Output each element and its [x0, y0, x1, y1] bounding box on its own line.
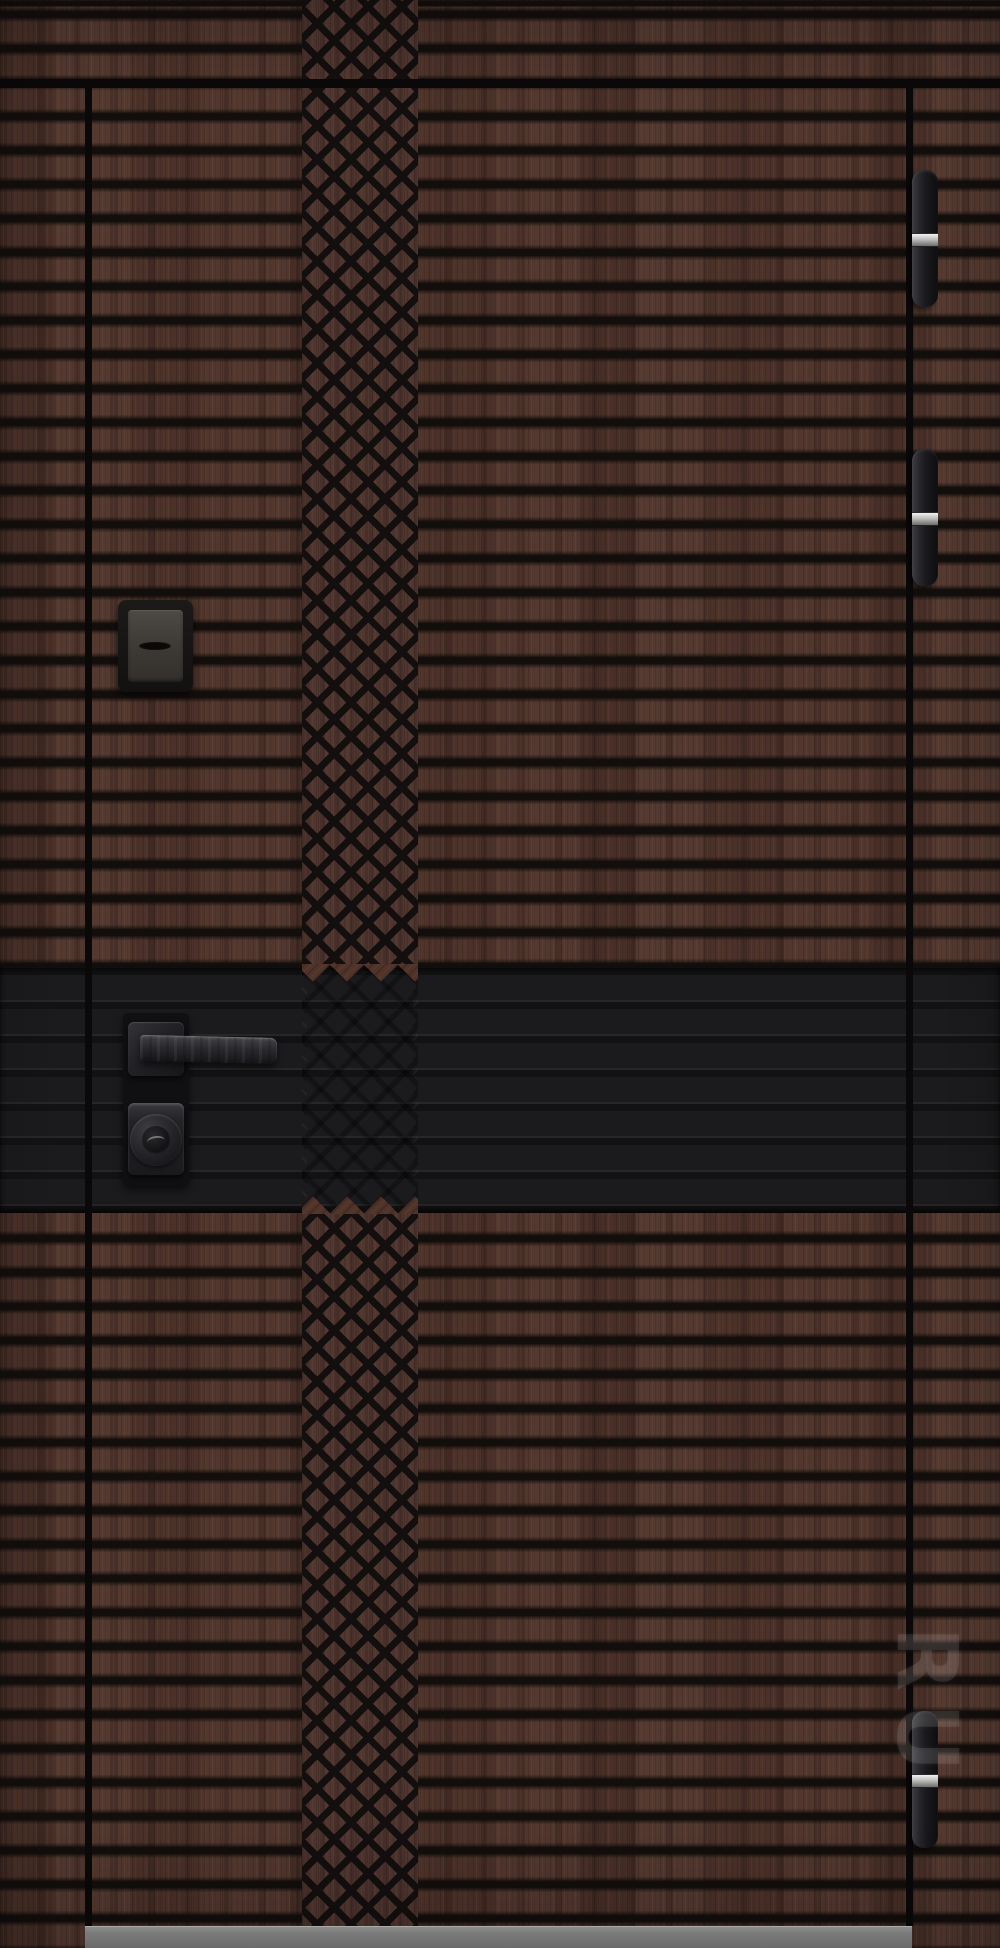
hinge-bottom [912, 1711, 938, 1848]
upper-lock-cover-face [128, 610, 183, 682]
keyhole-slot [139, 642, 171, 650]
hinge-middle [912, 449, 938, 586]
wood-diamond [361, 1196, 401, 1214]
wood-diamond [395, 1196, 418, 1214]
door-product-photo: RU [0, 0, 1000, 1948]
lattice-band-bottom-diamonds [302, 1188, 418, 1214]
lever-handle [140, 1035, 278, 1064]
wood-diamond [302, 964, 333, 982]
lattice-band-top-diamonds [302, 964, 418, 990]
wood-diamond [327, 1196, 367, 1214]
band-lattice-emboss [302, 966, 418, 1213]
hinge-top [912, 170, 938, 307]
door-gap-left [85, 84, 92, 1926]
upper-lock-cover [118, 600, 193, 692]
wood-diamond [361, 964, 401, 982]
threshold-sill [85, 1926, 912, 1948]
wood-diamond [327, 964, 367, 982]
hinge-pin-band [912, 1774, 938, 1788]
wood-diamond [395, 964, 418, 982]
door-gap-right [906, 84, 913, 1926]
hinge-pin-band [912, 512, 938, 526]
cylinder-lock [130, 1114, 182, 1166]
hinge-pin-band [912, 233, 938, 247]
wood-diamond [302, 1196, 333, 1214]
transom-seam [0, 79, 1000, 88]
